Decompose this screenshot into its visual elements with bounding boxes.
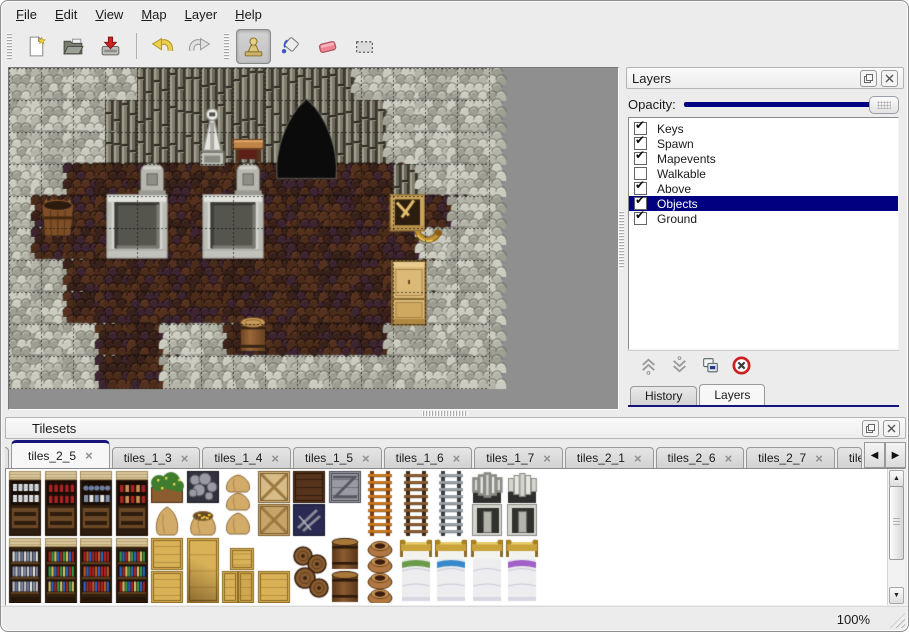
tileset-tab-tiles_2_7[interactable]: tiles_2_7× — [746, 447, 835, 468]
scroll-down-button[interactable]: ▼ — [889, 587, 904, 604]
open-folder-icon — [61, 34, 86, 59]
tileset-scrollbar[interactable]: ▲ ▼ — [887, 469, 905, 605]
fill-icon — [278, 34, 303, 59]
save-button[interactable] — [93, 29, 128, 64]
tileset-content: ▲ ▼ — [5, 468, 906, 606]
tab-close-icon[interactable]: × — [362, 451, 370, 466]
tab-close-icon[interactable]: × — [634, 451, 642, 466]
panel-tab-history[interactable]: History — [630, 386, 697, 405]
tab-label: tiles_ — [849, 451, 862, 465]
tileset-tab-tiles_1_5[interactable]: tiles_1_5× — [293, 447, 382, 468]
tab-label: tiles_1_7 — [486, 451, 534, 465]
menu-file[interactable]: File — [7, 4, 46, 25]
menu-layer[interactable]: Layer — [176, 4, 227, 25]
menu-edit[interactable]: Edit — [46, 4, 86, 25]
redo-icon — [187, 34, 212, 59]
menu-help[interactable]: Help — [226, 4, 271, 25]
layer-name: Walkable — [657, 167, 706, 181]
layer-name: Mapevents — [657, 152, 716, 166]
eraser-tool-button[interactable] — [310, 29, 345, 64]
splitter-grip[interactable] — [619, 211, 624, 269]
layer-name: Keys — [657, 122, 684, 136]
tab-close-icon[interactable]: × — [453, 451, 461, 466]
tab-label: tiles_2_5 — [28, 449, 76, 463]
tab-close-icon[interactable]: × — [181, 451, 189, 466]
tileset-tab-bar: tiles_2_5×tiles_1_3×tiles_1_4×tiles_1_5×… — [5, 440, 906, 468]
lower-layer-button[interactable] — [668, 354, 690, 376]
tab-label: tiles_1_3 — [124, 451, 172, 465]
delete-layer-button[interactable] — [730, 354, 752, 376]
layers-panel: Layers Opacity: ✔Keys✔Spawn✔MapeventsWal… — [626, 67, 904, 410]
tab-label: tiles_2_7 — [758, 451, 806, 465]
vertical-splitter[interactable] — [618, 67, 626, 408]
close-panel-button[interactable] — [881, 70, 898, 87]
new-file-icon — [24, 34, 49, 59]
tab-label: tiles_2_1 — [577, 451, 625, 465]
layer-row-mapevents[interactable]: ✔Mapevents — [629, 151, 898, 166]
scroll-up-button[interactable]: ▲ — [889, 470, 904, 487]
opacity-slider[interactable] — [684, 94, 899, 114]
toolbar-separator — [136, 33, 137, 59]
horizontal-splitter[interactable] — [1, 409, 908, 417]
layer-row-objects[interactable]: ✔Objects — [629, 196, 898, 211]
layer-name: Ground — [657, 212, 697, 226]
new-map-button[interactable] — [19, 29, 54, 64]
map-view — [8, 67, 619, 410]
menu-map[interactable]: Map — [132, 4, 175, 25]
raise-layer-button[interactable] — [637, 354, 659, 376]
layer-name: Spawn — [657, 137, 694, 151]
tileset-tab-tiles_1_7[interactable]: tiles_1_7× — [474, 447, 563, 468]
layer-row-spawn[interactable]: ✔Spawn — [629, 136, 898, 151]
tileset-tab-tiles_1_6[interactable]: tiles_1_6× — [384, 447, 473, 468]
stamp-tool-button[interactable] — [236, 29, 271, 64]
scroll-tabs-left-button[interactable]: ◀ — [864, 442, 885, 468]
open-button[interactable] — [56, 29, 91, 64]
side-tab-bar: HistoryLayers — [628, 382, 899, 407]
tab-close-icon[interactable]: × — [85, 448, 93, 463]
layer-row-keys[interactable]: ✔Keys — [629, 121, 898, 136]
statusbar: 100% — [1, 606, 908, 631]
scrollbar-thumb[interactable] — [889, 486, 904, 560]
layer-name: Objects — [657, 197, 698, 211]
map-canvas[interactable] — [9, 68, 616, 407]
tileset-tab-tiles_2_5[interactable]: tiles_2_5× — [11, 440, 110, 468]
layer-row-ground[interactable]: ✔Ground — [629, 211, 898, 226]
layer-visibility-checkbox[interactable]: ✔ — [634, 152, 647, 165]
tab-label: tiles_2_6 — [668, 451, 716, 465]
scroll-tabs-right-button[interactable]: ▶ — [885, 442, 906, 468]
tab-label: tiles_1_5 — [305, 451, 353, 465]
undo-button[interactable] — [145, 29, 180, 64]
tileset-tab-tiles_1_4[interactable]: tiles_1_4× — [202, 447, 291, 468]
opacity-label: Opacity: — [628, 97, 684, 112]
layer-row-walkable[interactable]: Walkable — [629, 166, 898, 181]
menubar: FileEditViewMapLayerHelp — [7, 3, 271, 26]
float-panel-button[interactable] — [862, 420, 879, 437]
zoom-level-label: 100% — [837, 612, 870, 627]
layer-list: ✔Keys✔Spawn✔MapeventsWalkable✔Above✔Obje… — [628, 117, 899, 350]
save-icon — [98, 34, 123, 59]
splitter-grip[interactable] — [422, 411, 468, 416]
tilesets-panel: Tilesets tiles_2_5×tiles_1_3×tiles_1_4×t… — [5, 417, 906, 607]
tileset-tab-tiles_2_6[interactable]: tiles_2_6× — [656, 447, 745, 468]
close-panel-button[interactable] — [883, 420, 900, 437]
select-icon — [352, 34, 377, 59]
opacity-slider-thumb[interactable] — [869, 96, 899, 114]
layers-panel-titlebar: Layers — [626, 67, 904, 89]
tileset-tab-tiles_1_3[interactable]: tiles_1_3× — [112, 447, 201, 468]
select-tool-button[interactable] — [347, 29, 382, 64]
toolbar-drag-handle[interactable] — [7, 33, 12, 60]
fill-tool-button[interactable] — [273, 29, 308, 64]
tab-close-icon[interactable]: × — [543, 451, 551, 466]
opacity-slider-track[interactable] — [684, 102, 893, 107]
tab-label: tiles_1_4 — [214, 451, 262, 465]
panel-tab-layers[interactable]: Layers — [699, 384, 765, 405]
tab-close-icon[interactable]: × — [725, 451, 733, 466]
menu-view[interactable]: View — [86, 4, 132, 25]
opacity-row: Opacity: — [628, 94, 899, 114]
resize-grip[interactable] — [890, 613, 905, 628]
eraser-icon — [315, 34, 340, 59]
clipped-tab[interactable] — [5, 447, 9, 468]
redo-button[interactable] — [182, 29, 217, 64]
tab-close-icon[interactable]: × — [815, 451, 823, 466]
tilesets-panel-title: Tilesets — [32, 421, 858, 436]
tab-label: tiles_1_6 — [396, 451, 444, 465]
undo-icon — [150, 34, 175, 59]
layer-buttons-row — [628, 350, 899, 379]
layer-row-above[interactable]: ✔Above — [629, 181, 898, 196]
tileset-canvas[interactable] — [6, 469, 551, 603]
app-window: FileEditViewMapLayerHelp Layers Opacity:… — [0, 0, 909, 632]
toolbar — [1, 27, 908, 65]
tab-scroll-buttons: ◀▶ — [864, 442, 906, 468]
layer-name: Above — [657, 182, 691, 196]
stamp-icon — [241, 34, 266, 59]
tab-close-icon[interactable]: × — [271, 451, 279, 466]
layer-visibility-checkbox[interactable]: ✔ — [634, 212, 647, 225]
duplicate-layer-button[interactable] — [699, 354, 721, 376]
tileset-tab-tiles[interactable]: tiles_ — [837, 447, 862, 468]
layers-panel-title: Layers — [632, 71, 856, 86]
tileset-tab-tiles_2_1[interactable]: tiles_2_1× — [565, 447, 654, 468]
toolbar-drag-handle[interactable] — [224, 33, 229, 60]
tilesets-panel-titlebar: Tilesets — [5, 417, 906, 439]
float-panel-button[interactable] — [860, 70, 877, 87]
